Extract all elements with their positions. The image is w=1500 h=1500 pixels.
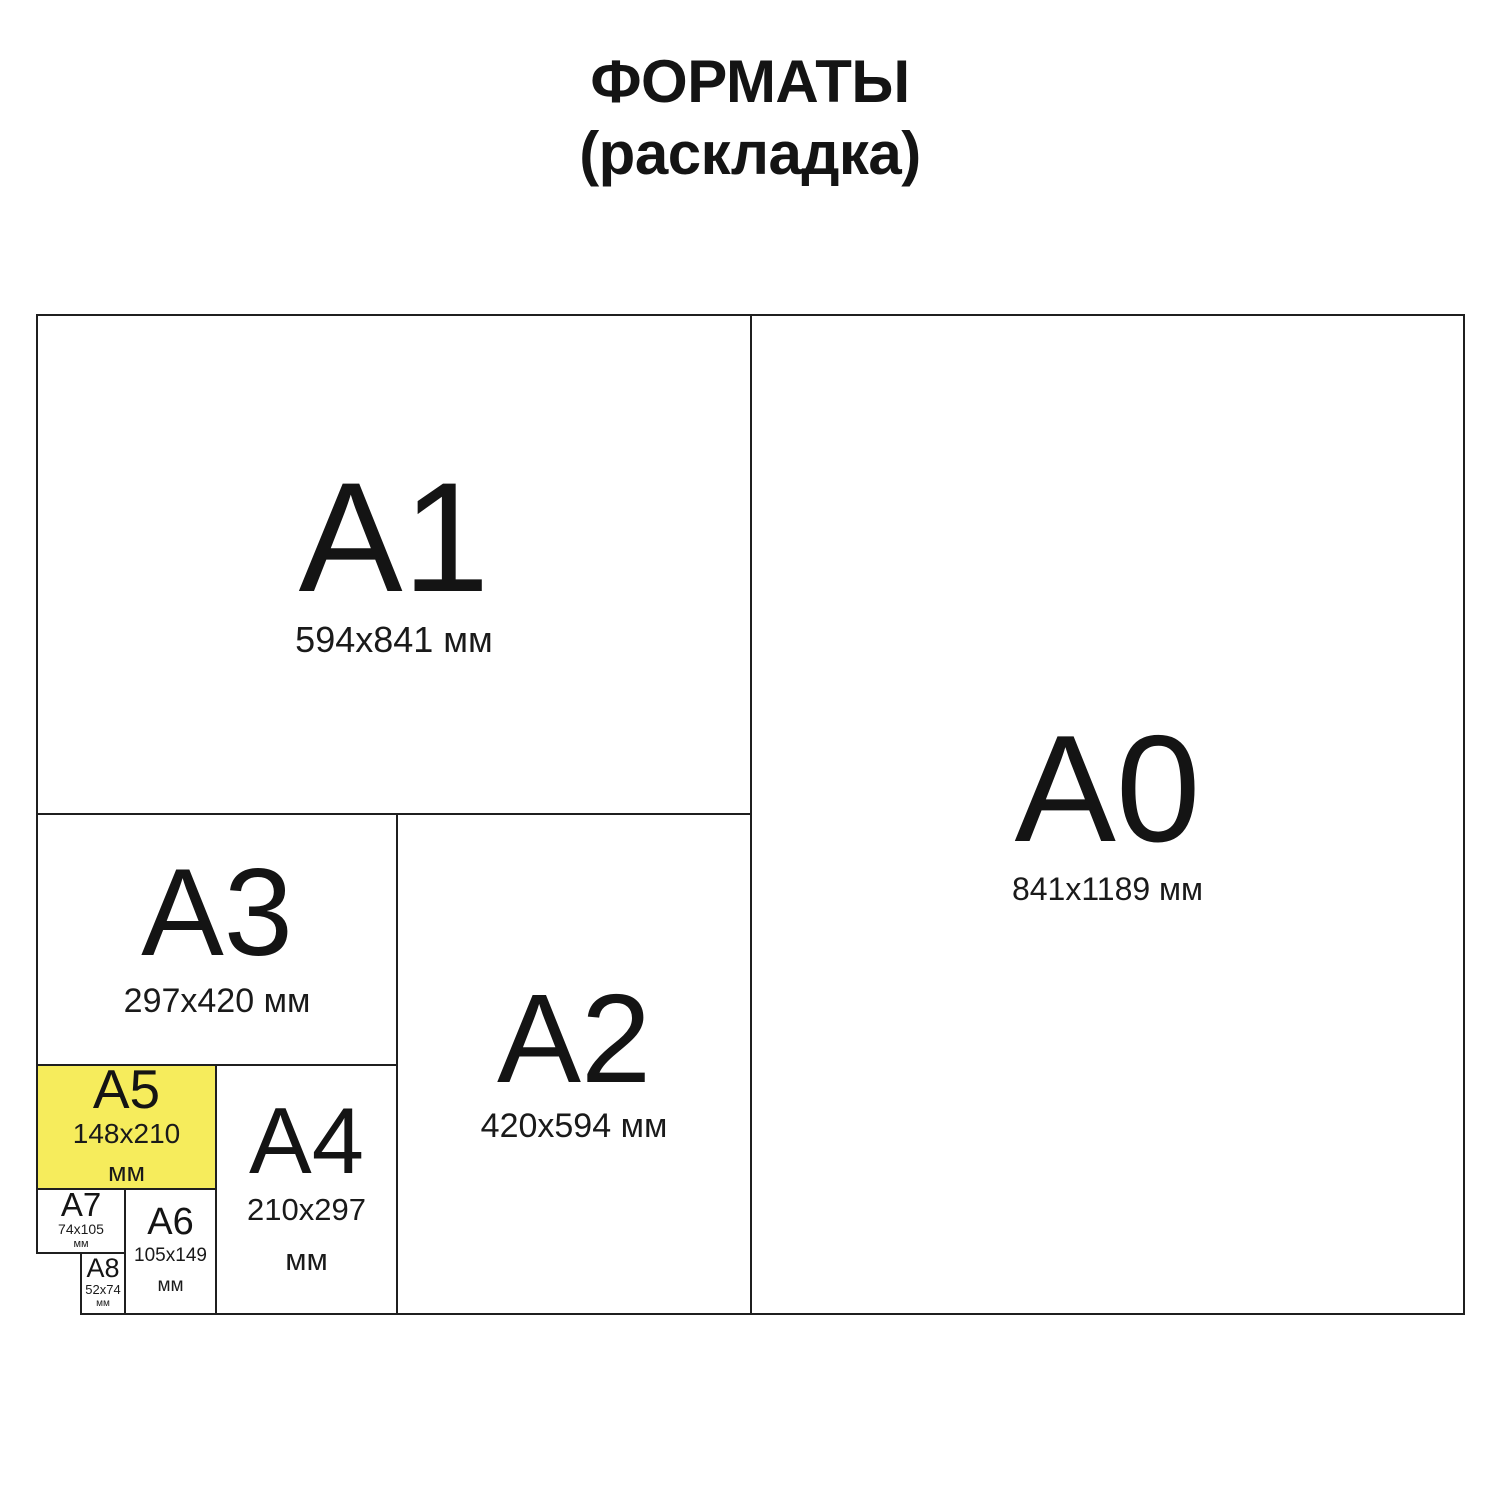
page-title: ФОРМАТЫ (раскладка) — [0, 46, 1500, 190]
format-box-a6: A6 105x149 мм — [124, 1188, 217, 1315]
format-box-a7: A7 74x105 мм — [36, 1188, 126, 1254]
format-unit-a4: мм — [285, 1242, 328, 1278]
format-label-a1: A1 — [299, 468, 490, 608]
format-box-a1: A1 594x841 мм — [36, 314, 752, 815]
title-line-1: ФОРМАТЫ — [0, 46, 1500, 118]
format-size-a8: 52x74 — [85, 1282, 120, 1297]
format-box-a0: A0 841x1189 мм — [750, 314, 1465, 1315]
format-label-a5: A5 — [93, 1066, 160, 1113]
format-size-a3: 297x420 мм — [124, 982, 311, 1021]
format-size-a7: 74x105 — [58, 1221, 104, 1237]
format-box-a4: A4 210x297 мм — [215, 1064, 398, 1315]
format-label-a6: A6 — [147, 1206, 193, 1238]
format-size-a4: 210x297 — [247, 1192, 366, 1228]
paper-formats-diagram: ФОРМАТЫ (раскладка) A1 594x841 мм A0 841… — [0, 0, 1500, 1500]
format-label-a3: A3 — [141, 858, 293, 970]
format-label-a0: A0 — [1015, 721, 1201, 858]
format-unit-a7: мм — [73, 1238, 88, 1250]
format-size-a6: 105x149 — [134, 1245, 207, 1267]
format-box-a8: A8 52x74 мм — [80, 1252, 126, 1315]
format-size-a1: 594x841 мм — [295, 619, 493, 661]
format-box-a3: A3 297x420 мм — [36, 813, 398, 1066]
format-size-a5: 148x210 — [73, 1118, 180, 1150]
format-label-a4: A4 — [249, 1101, 364, 1181]
format-box-a5-highlighted: A5 148x210 мм — [36, 1064, 217, 1190]
format-unit-a5: мм — [108, 1157, 145, 1188]
title-line-2: (раскладка) — [0, 118, 1500, 190]
format-box-a2: A2 420x594 мм — [396, 813, 752, 1315]
format-unit-a6: мм — [157, 1275, 183, 1297]
format-label-a2: A2 — [497, 982, 651, 1095]
format-unit-a8: мм — [96, 1298, 110, 1309]
format-size-a2: 420x594 мм — [481, 1107, 668, 1146]
format-label-a7: A7 — [61, 1192, 101, 1218]
format-label-a8: A8 — [86, 1258, 119, 1280]
format-size-a0: 841x1189 мм — [1012, 871, 1203, 908]
